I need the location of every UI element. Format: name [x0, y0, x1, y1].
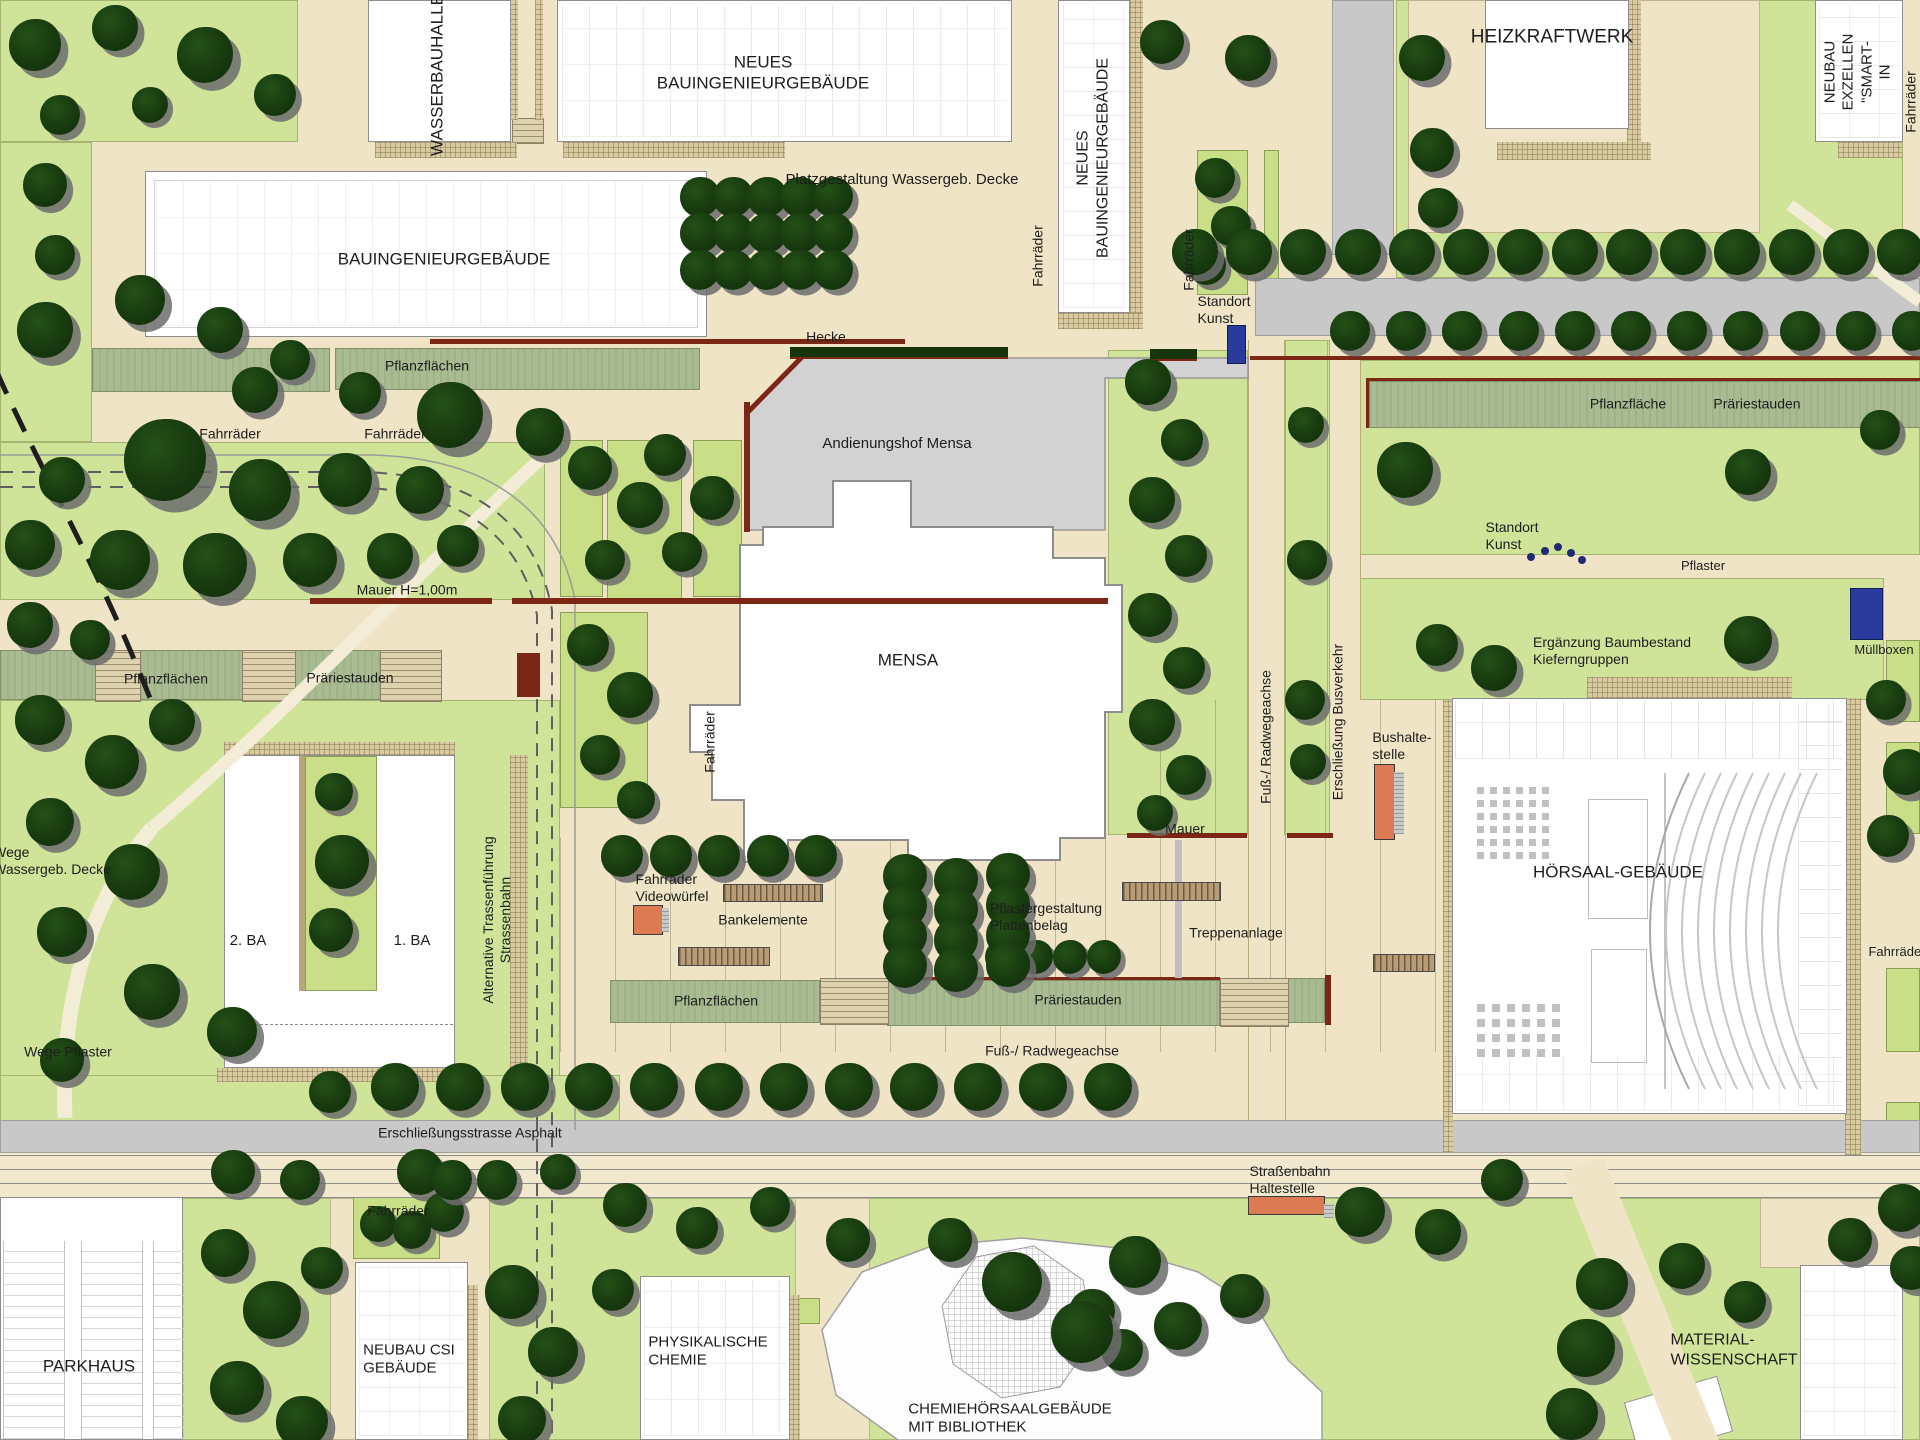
label-strassenbahn-haltestelle: Straßenbahn Haltestelle: [1250, 1163, 1331, 1197]
label-chemiehoersaalgebaeude: CHEMIEHÖRSAALGEBÄUDE MIT BIBLIOTHEK: [908, 1401, 1111, 1438]
label-fahrraeder-mensa: Fahrräder: [701, 711, 718, 772]
label-wege-wassergeb-decke: Wege Wassergeb. Decke: [0, 844, 111, 878]
label-material-wissenschaft: MATERIAL- WISSENSCHAFT: [1670, 1330, 1797, 1369]
label-bauingenieurgebaeude: BAUINGENIEURGEBÄUDE: [338, 250, 551, 271]
label-standort-kunst-2: Standort Kunst: [1486, 519, 1539, 553]
label-praeriestauden-mitte: Präriestauden: [306, 669, 393, 686]
label-wasserbauhalle: WASSERBAUHALLE: [428, 0, 449, 156]
label-ba-2: 2. BA: [230, 932, 267, 950]
label-neues-bauingenieurgebaeude-top: NEUES BAUINGENIEURGEBÄUDE: [657, 52, 870, 93]
label-muellboxen: Müllboxen: [1854, 642, 1913, 658]
label-fahrraeder-nw-2: Fahrräder: [364, 425, 425, 442]
label-praeriestauden-sued: Präriestauden: [1034, 991, 1121, 1008]
label-parkhaus: PARKHAUS: [43, 1357, 135, 1378]
label-fahrraeder-csi: Fahrräder: [367, 1202, 428, 1219]
label-bushaltestelle: Bushalte- stelle: [1372, 729, 1431, 763]
label-andienungshof-mensa: Andienungshof Mensa: [822, 435, 971, 453]
label-platzgestaltung-wassergeb-decke: Platzgestaltung Wassergeb. Decke: [786, 171, 1019, 189]
label-fuss-radwegeachse-vert: Fuß-/ Radwegeachse: [1257, 670, 1274, 804]
label-bankelemente: Bankelemente: [718, 911, 808, 928]
label-fahrraeder-platz: Fahrräder: [1029, 225, 1046, 286]
label-fahrraeder-ne: Fahrräder: [1902, 71, 1919, 132]
label-erschliessungsstrasse-asphalt: Erschließungsstrasse Asphalt: [378, 1124, 562, 1141]
label-physikalische-chemie: PHYSIKALISCHE CHEMIE: [648, 1334, 767, 1371]
label-mauer-treppe: Mauer: [1165, 820, 1205, 837]
label-hoersaal-gebaeude: HÖRSAAL-GEBÄUDE: [1533, 863, 1703, 884]
campus-site-plan: WASSERBAUHALLENEUES BAUINGENIEURGEBÄUDEP…: [0, 0, 1920, 1440]
label-pflanzflaechen-west: Pflanzflächen: [385, 357, 469, 374]
label-neubau-csi-gebaeude: NEUBAU CSI GEBÄUDE: [363, 1342, 455, 1379]
label-mensa: MENSA: [878, 651, 938, 672]
label-neubau-exzellenz: NEUBAU EXZELLEN "SMART-IN: [1821, 34, 1894, 111]
label-alternative-trasse: Alternative Trassenführung Strassenbahn: [480, 836, 514, 1003]
label-pflaster: Pflaster: [1681, 558, 1725, 574]
label-pflanzflaechen-sued: Pflanzflächen: [674, 992, 758, 1009]
label-erschliessung-busverkehr: Erschließung Busverkehr: [1329, 644, 1346, 800]
label-standort-kunst-1: Standort Kunst: [1198, 293, 1251, 327]
label-pflanzflaechen-mitte: Pflanzflächen: [124, 670, 208, 687]
label-fahrraeder-videowuerfel: Fahrräder Videowürfel: [636, 871, 709, 905]
label-treppenanlage: Treppenanlage: [1189, 924, 1283, 941]
label-fahrraeder-kunst: Fahrräder: [1180, 229, 1197, 290]
label-praeriestauden-ost: Präriestauden: [1713, 395, 1800, 412]
label-hecke: Hecke: [806, 328, 846, 345]
label-fuss-radwegeachse-h: Fuß-/ Radwegeachse: [985, 1042, 1119, 1059]
label-fahrraeder-hoersaal-ost: Fahrräder: [1868, 944, 1920, 960]
label-mauer-h100: Mauer H=1,00m: [357, 581, 458, 598]
label-fahrraeder-nw-1: Fahrräder: [199, 425, 260, 442]
label-ergaenzung-baumbestand: Ergänzung Baumbestand Kieferngruppen: [1533, 634, 1691, 668]
labels-layer: WASSERBAUHALLENEUES BAUINGENIEURGEBÄUDEP…: [0, 0, 1920, 1440]
label-ba-1: 1. BA: [394, 932, 431, 950]
label-wege-pflaster: Wege Pflaster: [24, 1043, 112, 1060]
label-neues-bauingenieurgebaeude-vert: NEUES BAUINGENIEURGEBÄUDE: [1073, 58, 1112, 258]
label-heizkraftwerk: HEIZKRAFTWERK: [1471, 25, 1634, 48]
label-pflanzflaeche-ost: Pflanzfläche: [1590, 395, 1666, 412]
label-pflastergestaltung: Pflastergestaltung Plattenbelag: [990, 900, 1102, 934]
